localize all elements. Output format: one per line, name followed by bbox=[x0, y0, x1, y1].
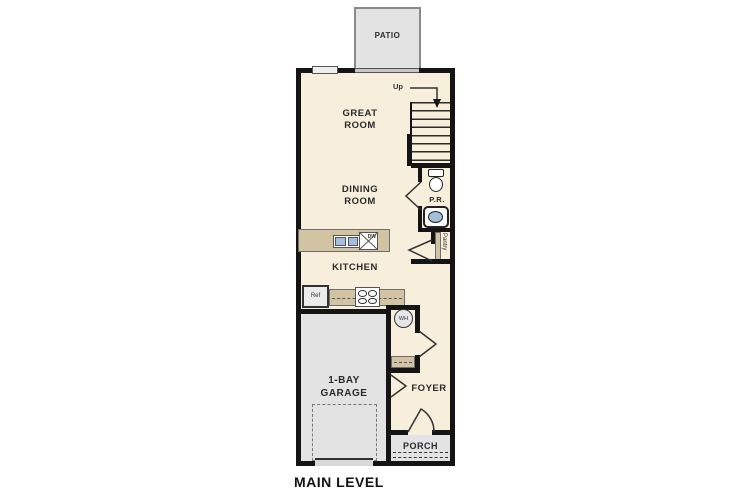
dining-room-label-line2: ROOM bbox=[320, 196, 400, 208]
pr-left-wall-lower bbox=[418, 206, 422, 230]
garage-label-line1: 1-BAY bbox=[310, 375, 378, 388]
burner-2 bbox=[368, 290, 377, 297]
closet-shelf bbox=[391, 356, 415, 368]
garage-door bbox=[315, 458, 373, 466]
porch-area: PORCH bbox=[391, 435, 450, 461]
pantry-bottom-wall bbox=[411, 259, 455, 264]
patio-label: PATIO bbox=[356, 31, 419, 41]
wh-closet-right-wall-upper bbox=[415, 305, 420, 333]
powder-room-label: P.R. bbox=[422, 195, 452, 204]
water-heater: WH bbox=[394, 309, 413, 328]
refrigerator: Ref bbox=[302, 285, 329, 308]
toilet-tank bbox=[428, 169, 444, 177]
great-room-label-line2: ROOM bbox=[320, 120, 400, 132]
garage-label-line2: GARAGE bbox=[310, 388, 378, 401]
staircase bbox=[410, 102, 450, 166]
window-top-left bbox=[312, 66, 338, 74]
wh-closet-bottom-wall bbox=[386, 368, 419, 373]
parking-space-outline bbox=[312, 404, 377, 461]
kitchen-sink-basin-left bbox=[335, 237, 346, 246]
floor-plan-canvas: PATIO GREAT ROOM Up P.R. Pantry DINING R… bbox=[0, 0, 750, 500]
porch-label: PORCH bbox=[391, 441, 450, 452]
kitchen-sink bbox=[333, 235, 360, 248]
dishwasher-label: DW bbox=[368, 234, 376, 240]
garage-label: 1-BAY GARAGE bbox=[310, 375, 378, 400]
stairs-up-label: Up bbox=[393, 82, 409, 91]
burner-4 bbox=[368, 298, 377, 305]
dining-room-label: DINING ROOM bbox=[320, 184, 400, 208]
great-room-label: GREAT ROOM bbox=[320, 108, 400, 132]
water-heater-label: WH bbox=[395, 316, 412, 322]
stair-side-wall bbox=[407, 134, 411, 166]
plan-title: MAIN LEVEL bbox=[294, 474, 424, 490]
burner-3 bbox=[358, 298, 367, 305]
porch-step-line-1 bbox=[393, 452, 448, 453]
kitchen-label: KITCHEN bbox=[320, 262, 390, 274]
patio-area: PATIO bbox=[354, 7, 421, 70]
dining-room-label-line1: DINING bbox=[320, 184, 400, 196]
foyer-label: FOYER bbox=[408, 383, 450, 395]
kitchen-sink-basin-right bbox=[348, 237, 359, 246]
pantry-label: Pantry bbox=[441, 233, 447, 261]
vanity-counter bbox=[423, 206, 449, 228]
burner-1 bbox=[358, 290, 367, 297]
patio-slider-door bbox=[355, 68, 419, 73]
wall-right bbox=[450, 68, 455, 466]
pr-left-wall-upper bbox=[418, 168, 422, 182]
dishwasher: DW bbox=[359, 232, 378, 250]
porch-step-line-2 bbox=[393, 457, 448, 458]
range-cooktop bbox=[355, 287, 380, 307]
great-room-label-line1: GREAT bbox=[320, 108, 400, 120]
refrigerator-label: Ref bbox=[304, 293, 327, 299]
toilet-bowl bbox=[429, 177, 443, 192]
bathroom-sink bbox=[428, 211, 443, 223]
